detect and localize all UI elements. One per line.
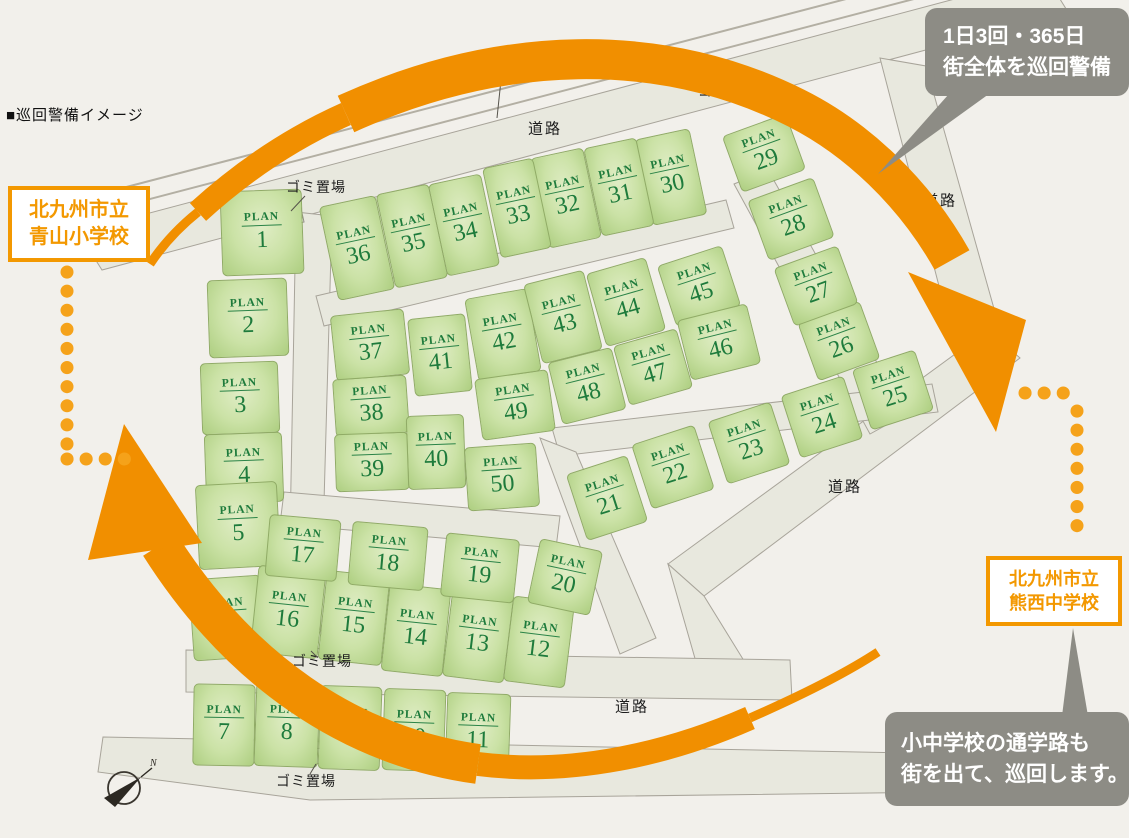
bubble-school-route-line2: 街を出て、巡回します。 (901, 759, 1129, 791)
school-junior-high-line2: 熊西中学校 (1009, 591, 1099, 615)
leader-garbage-topleft (291, 196, 305, 211)
bubble-tail-bottom (1062, 628, 1088, 716)
leader-garbage-bottom (310, 764, 316, 774)
bubble-tail-top (878, 86, 1000, 174)
school-label-junior-high: 北九州市立 熊西中学校 (986, 556, 1122, 626)
school-junior-high-line1: 北九州市立 (1009, 567, 1099, 591)
patrol-route-arrow-bottom (160, 545, 878, 767)
bubble-patrol-line2: 街全体を巡回警備 (943, 52, 1129, 84)
page-title: ■巡回警備イメージ (6, 104, 144, 125)
patrol-map: PLAN1PLAN2PLAN3PLAN4PLAN5PLAN6PLAN7PLAN8… (0, 0, 1129, 838)
bubble-school-route-line1: 小中学校の通学路も (901, 728, 1129, 760)
leader-garbage-mid (311, 651, 317, 657)
patrol-arrowhead-right (908, 272, 1026, 432)
school-elementary-line2: 青山小学校 (29, 224, 129, 251)
school-elementary-line1: 北九州市立 (29, 197, 129, 224)
dotted-line-elementary (67, 272, 143, 459)
compass-icon: N (104, 758, 158, 807)
patrol-route-arrow-top (150, 59, 952, 264)
bubble-patrol: 1日3回・365日 街全体を巡回警備 (925, 8, 1129, 96)
patrol-arrowhead-left (88, 424, 202, 560)
dotted-line-junior-high (1025, 393, 1077, 537)
bubble-school-route: 小中学校の通学路も 街を出て、巡回します。 (885, 712, 1129, 806)
compass-n-label: N (149, 758, 158, 769)
bubble-patrol-line1: 1日3回・365日 (943, 21, 1129, 53)
school-label-elementary: 北九州市立 青山小学校 (8, 186, 150, 262)
